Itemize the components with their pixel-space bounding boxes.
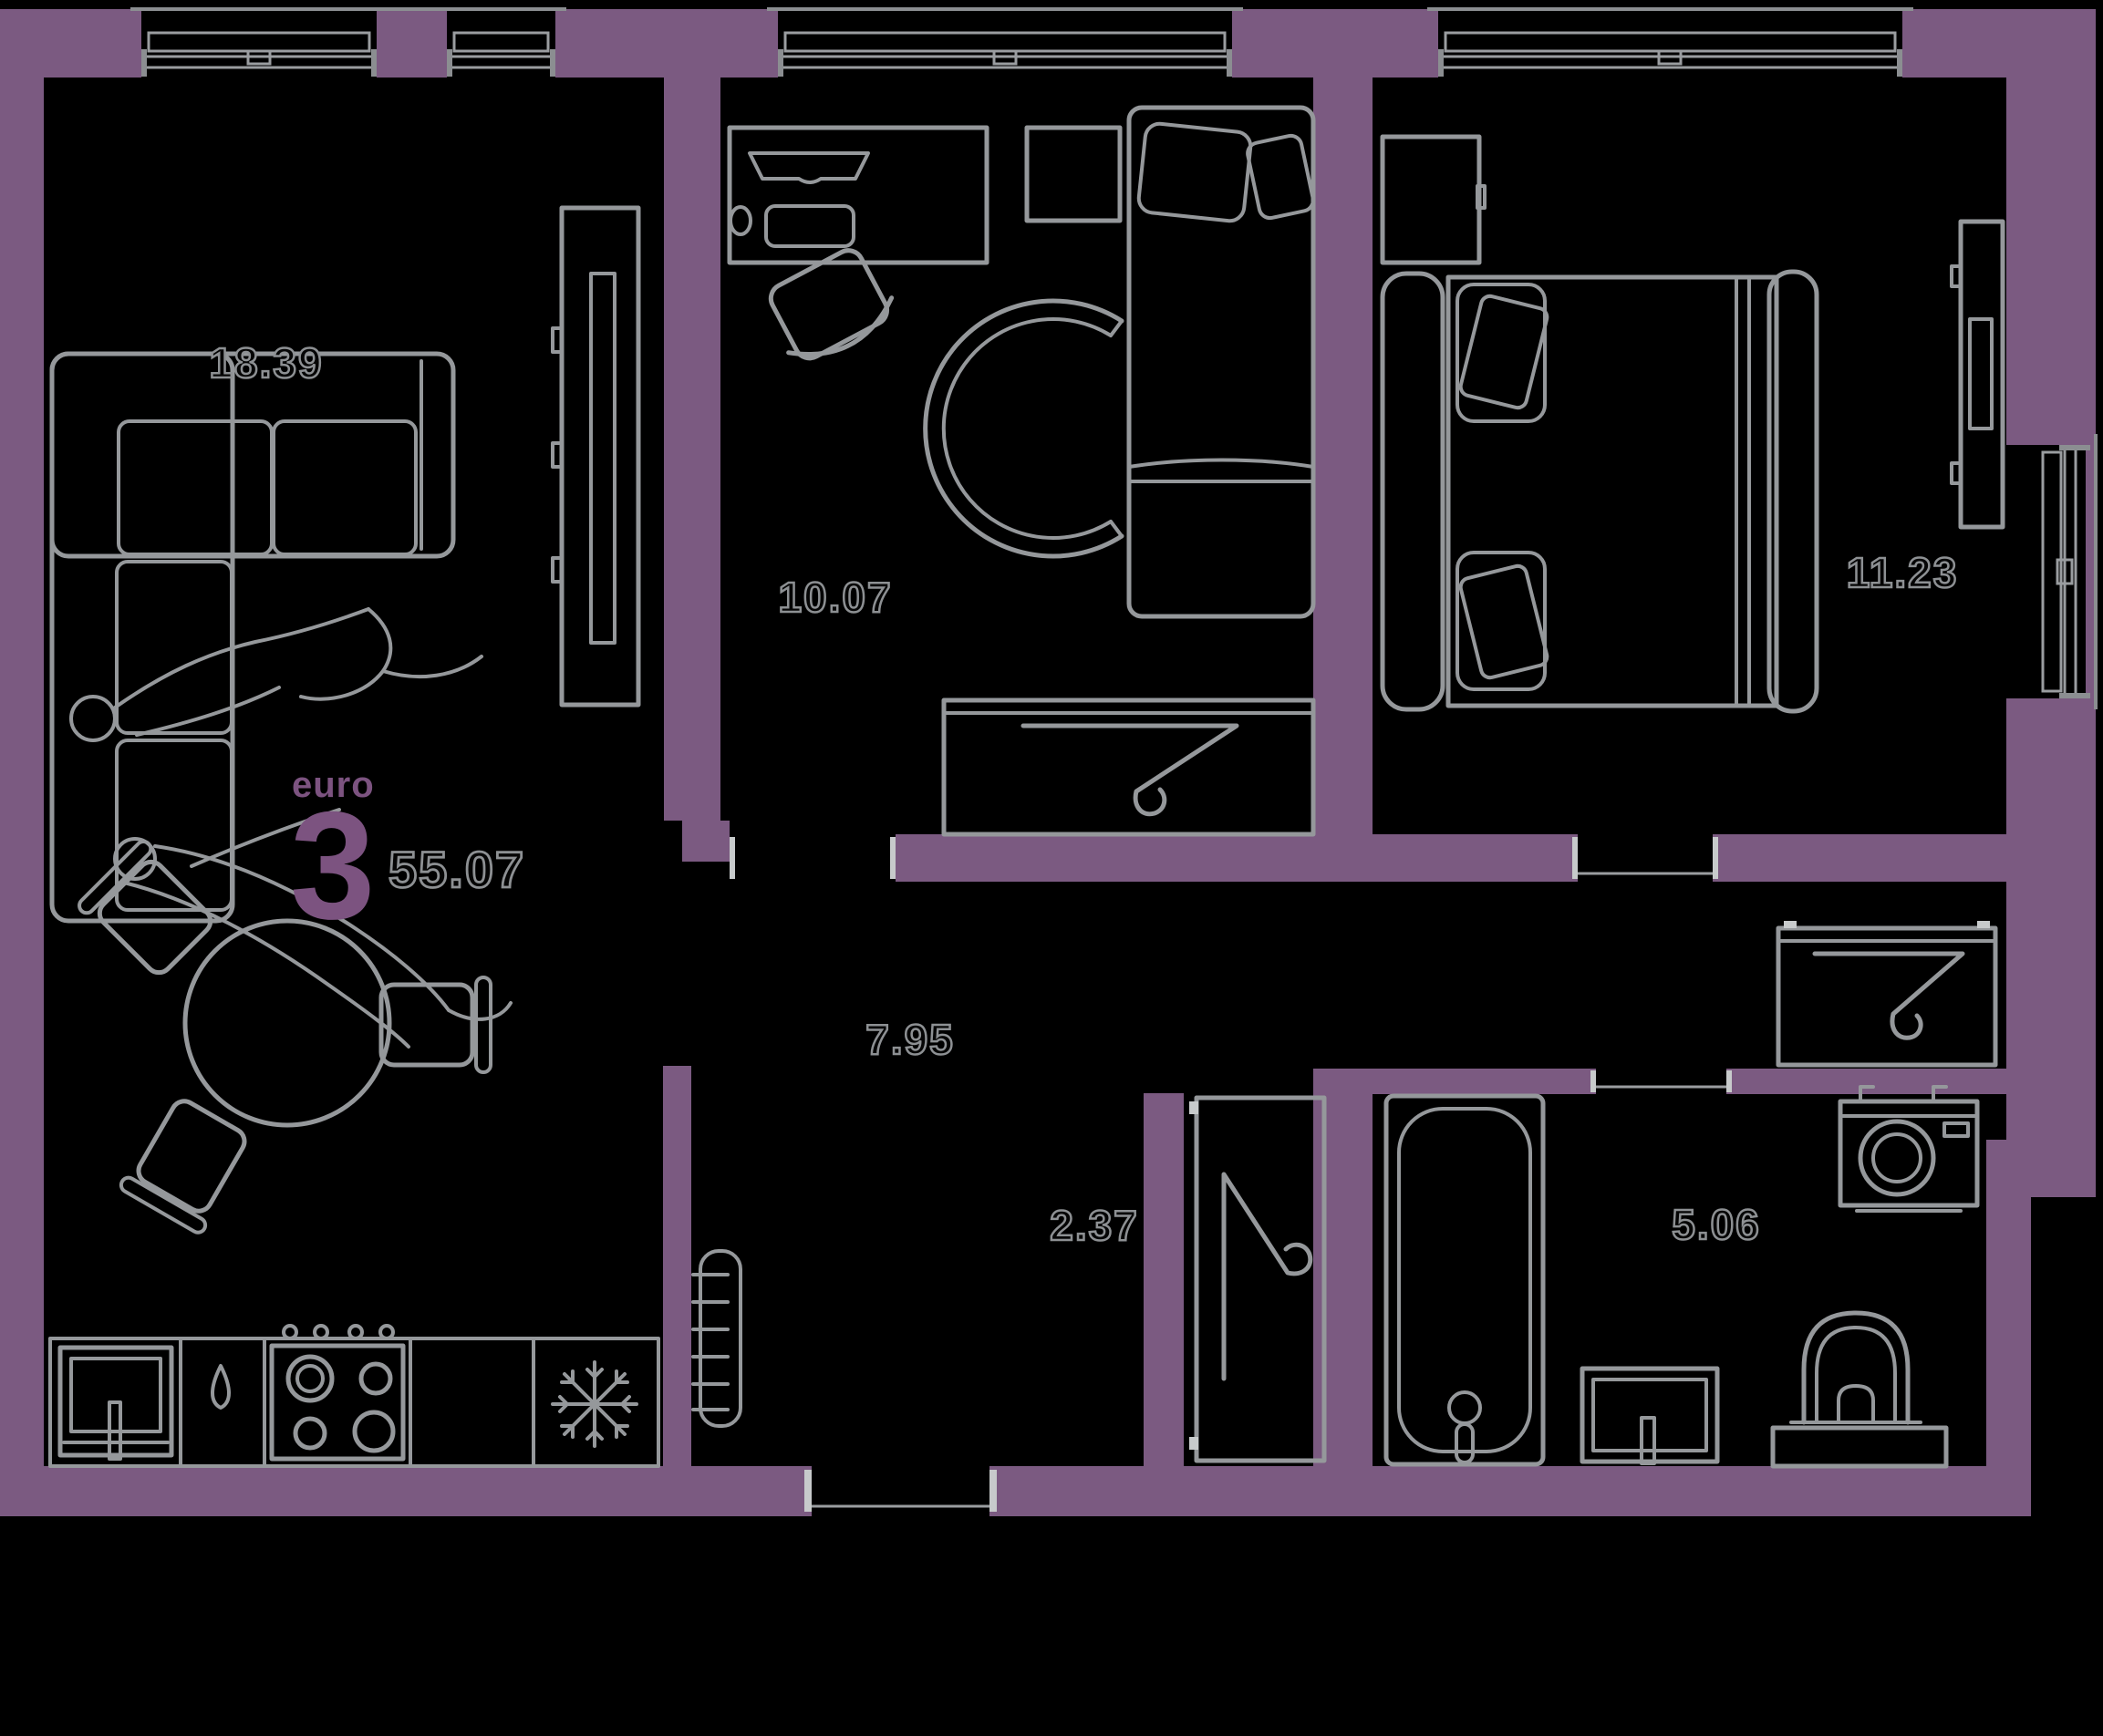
area-label-hallway: 7.95 xyxy=(865,1015,955,1064)
toilet-icon xyxy=(1791,1313,1921,1422)
area-label-bathroom: 5.06 xyxy=(1672,1200,1761,1249)
round-cradle-icon xyxy=(926,301,1122,556)
nightstand-icon xyxy=(1027,128,1120,221)
washing-machine-icon xyxy=(1840,1087,1977,1211)
floor-plan: 18.39 10.07 11.23 7.95 2.37 5.06 euro 3 … xyxy=(0,0,2103,1736)
cabinet-icon xyxy=(1773,1428,1946,1466)
bathroom-sink-icon xyxy=(1582,1369,1717,1463)
desk-icon xyxy=(730,128,987,263)
bathtub-icon xyxy=(1386,1096,1543,1464)
tv-panel-icon xyxy=(553,208,638,705)
double-bed-icon xyxy=(1383,272,1817,711)
plan-total-area: 55.07 xyxy=(388,840,525,899)
tv-panel-icon xyxy=(1952,222,2003,527)
chair-icon xyxy=(381,977,491,1072)
fridge-snowflake-icon xyxy=(553,1362,637,1446)
area-label-master: 11.23 xyxy=(1847,548,1959,597)
kitchen-sink-icon xyxy=(60,1348,171,1459)
closet-hanger-icon xyxy=(1189,1098,1324,1461)
hob-icon xyxy=(272,1326,403,1459)
window-icon xyxy=(130,7,2098,709)
area-label-closet: 2.37 xyxy=(1050,1201,1139,1250)
wardrobe-hanger-icon xyxy=(1778,921,1995,1065)
towel-radiator-icon xyxy=(693,1251,741,1426)
nightstand-icon xyxy=(1383,137,1485,263)
chair-icon xyxy=(119,1093,255,1235)
faucet-drop-icon xyxy=(212,1366,229,1408)
area-label-children: 10.07 xyxy=(778,573,892,622)
round-dining-table-icon xyxy=(185,921,389,1125)
plan-format-number: 3 xyxy=(290,789,375,942)
plan-type-badge: euro 3 55.07 xyxy=(290,761,527,944)
area-label-living: 18.39 xyxy=(209,338,323,387)
wardrobe-hanger-icon xyxy=(944,700,1313,834)
single-bed-icon xyxy=(1129,108,1315,616)
